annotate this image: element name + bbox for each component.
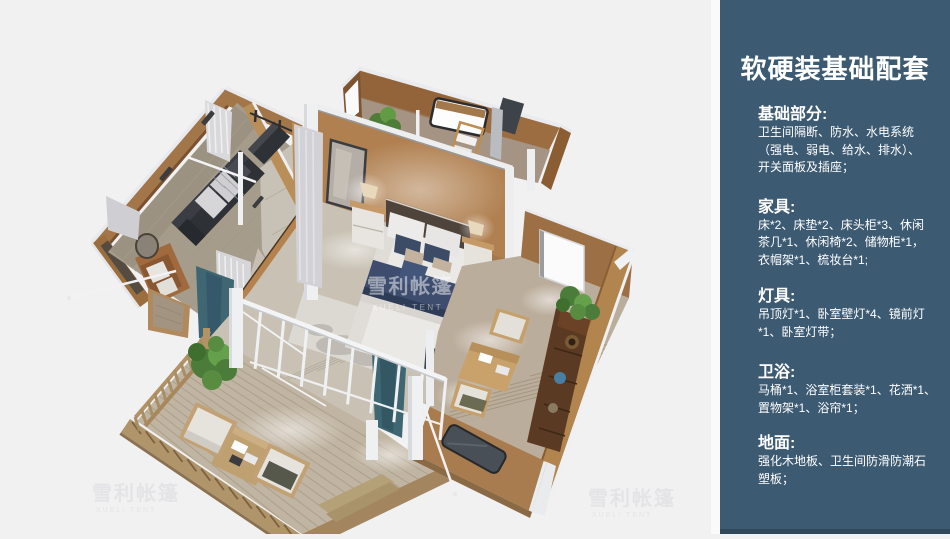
svg-text:雪利帐篷: 雪利帐篷 — [588, 486, 676, 510]
svg-text:雪利帐篷: 雪利帐篷 — [367, 274, 453, 298]
svg-text:XUELI TENT: XUELI TENT — [96, 507, 156, 514]
svg-text:XUELI TENT: XUELI TENT — [372, 303, 443, 312]
svg-text:XUELI TENT: XUELI TENT — [592, 512, 652, 519]
svg-text:雪利帐篷: 雪利帐篷 — [92, 481, 180, 505]
